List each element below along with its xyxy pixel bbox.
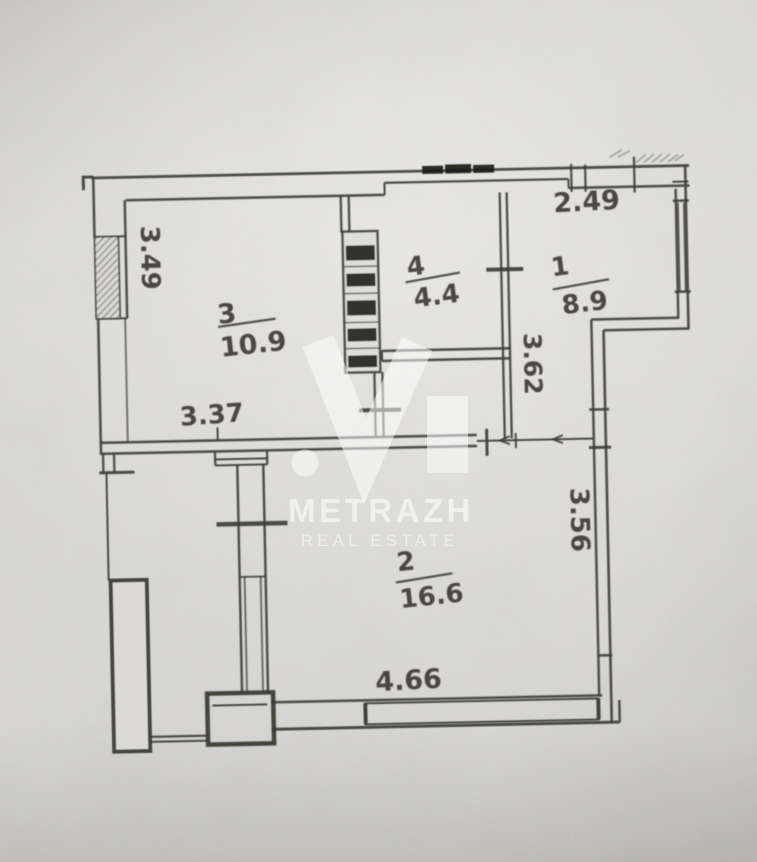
room4-area: 4.4: [412, 279, 461, 315]
dimension-left-wall: 3.49: [134, 225, 165, 290]
floorplan-drawing: 3 10.9 4 4.4 1 8.9 2 16.6 3.49 3.37 2.49…: [0, 0, 757, 862]
room1-number: 1: [549, 251, 571, 283]
watermark-brand: METRAZH: [288, 492, 474, 529]
dimension-room1-width: 2.49: [552, 185, 620, 220]
dimension-room3-width: 3.37: [179, 398, 245, 433]
floorplan-photo: 3 10.9 4 4.4 1 8.9 2 16.6 3.49 3.37 2.49…: [0, 0, 757, 862]
door-tick-room2: [217, 523, 288, 524]
dimension-room2-height: 3.56: [563, 487, 594, 552]
watermark-tagline: REAL ESTATE: [301, 532, 459, 550]
door-tick-room4: [486, 269, 523, 270]
room1-area: 8.9: [560, 286, 609, 322]
left-wall-window-hatch: [94, 236, 120, 318]
room2-number: 2: [395, 546, 416, 578]
dimension-room2-width: 4.66: [374, 664, 442, 699]
vent-shaft: [342, 231, 380, 373]
structural-column: [111, 580, 151, 752]
dimension-room1-height: 3.62: [518, 333, 548, 395]
